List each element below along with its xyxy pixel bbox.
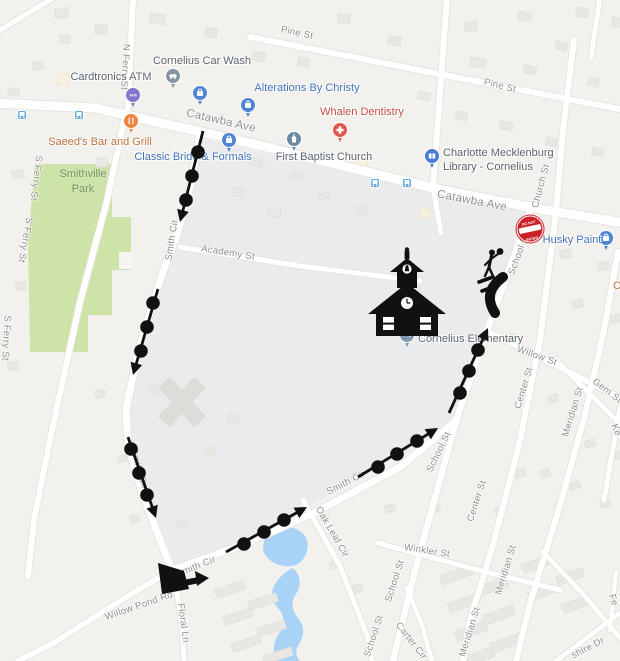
building [96, 157, 109, 167]
building [539, 469, 551, 479]
map-pin-car[interactable] [166, 69, 181, 89]
building [204, 27, 217, 38]
building [95, 25, 108, 35]
building [597, 261, 610, 272]
building [499, 121, 513, 132]
map-base-layer: ATM [0, 0, 620, 661]
svg-text:ATM: ATM [129, 93, 136, 97]
map-pin-cross[interactable] [333, 123, 348, 143]
map-pin-bag[interactable] [599, 231, 614, 251]
building [469, 57, 486, 69]
building [555, 41, 568, 51]
building [291, 171, 303, 181]
building [591, 147, 603, 157]
building [609, 314, 620, 325]
bus-stop-icon[interactable] [403, 179, 412, 188]
building [455, 111, 467, 121]
building [387, 35, 401, 46]
bus-stop-icon[interactable] [75, 111, 84, 120]
building [117, 454, 127, 463]
building [545, 137, 558, 147]
building [204, 447, 215, 457]
building [338, 14, 350, 23]
building [571, 299, 584, 310]
building [11, 169, 23, 178]
building [576, 7, 589, 17]
building [7, 361, 18, 371]
building [384, 504, 395, 513]
building [465, 22, 478, 32]
map-viewport[interactable]: ATM Smithville Park Pine StPine StN Ferr… [0, 0, 620, 661]
building [355, 205, 367, 215]
building [547, 394, 559, 404]
building [559, 249, 572, 260]
building [267, 207, 281, 218]
park-notch-building [119, 252, 132, 269]
bus-stop-icon[interactable] [371, 179, 380, 188]
building [249, 157, 262, 167]
building [8, 88, 19, 96]
building [517, 11, 531, 22]
building [94, 389, 106, 399]
building [60, 35, 70, 43]
building [523, 65, 537, 76]
road-meridian-st [516, 252, 618, 661]
building [569, 481, 581, 491]
building [129, 514, 140, 523]
road-stub-topleft [0, 0, 55, 30]
road-shire-dr-1 [543, 552, 620, 638]
building [482, 605, 515, 625]
building [150, 13, 166, 25]
building [247, 593, 278, 611]
building [611, 17, 620, 28]
building [251, 51, 266, 63]
building [55, 7, 69, 18]
building [15, 281, 26, 291]
creek [272, 568, 303, 661]
road-willow-pond-rd [18, 570, 172, 661]
building [297, 57, 309, 67]
road-casing [303, 500, 372, 661]
building [230, 635, 261, 653]
building [232, 188, 244, 197]
map-pin-bag[interactable] [241, 98, 256, 118]
map-pin-bag[interactable] [193, 86, 208, 106]
building [419, 208, 431, 219]
building [317, 191, 329, 201]
building [222, 608, 253, 626]
building [584, 439, 596, 449]
building [417, 91, 430, 101]
building [32, 62, 44, 71]
building [214, 581, 245, 599]
park-area [28, 164, 131, 352]
bus-stop-icon[interactable] [18, 111, 27, 120]
road-carter-cir [407, 588, 432, 661]
building [57, 74, 69, 85]
building [587, 77, 600, 87]
